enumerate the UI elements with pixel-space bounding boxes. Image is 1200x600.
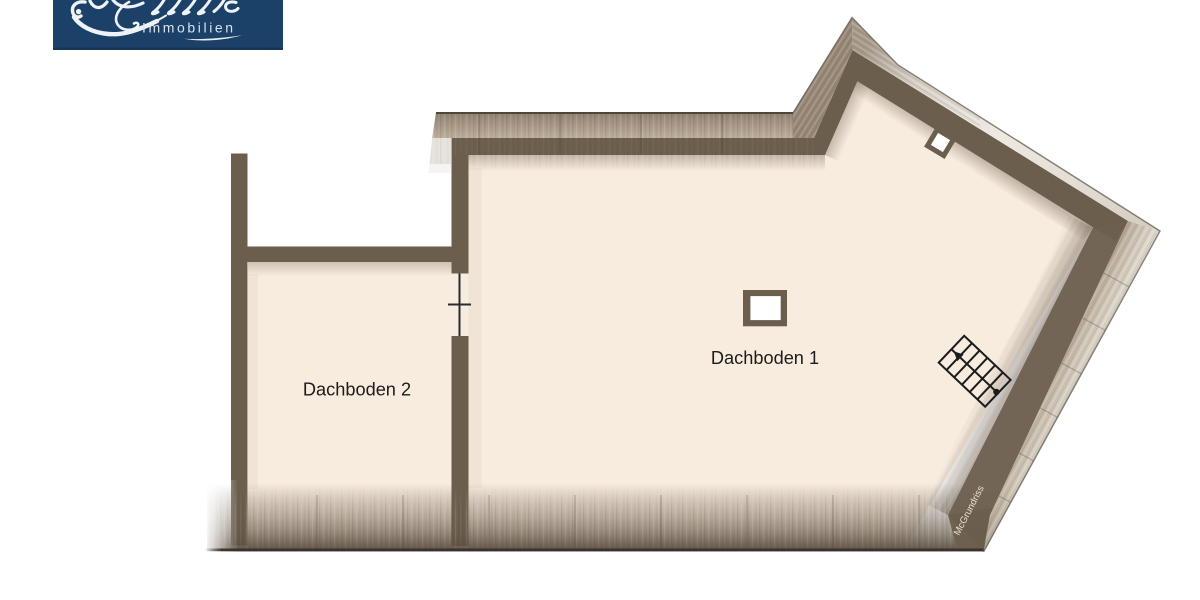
svg-text:Dachboden 1: Dachboden 1	[711, 348, 819, 368]
svg-text:Dachboden 2: Dachboden 2	[303, 380, 411, 400]
svg-text:Immobilien: Immobilien	[142, 19, 236, 35]
